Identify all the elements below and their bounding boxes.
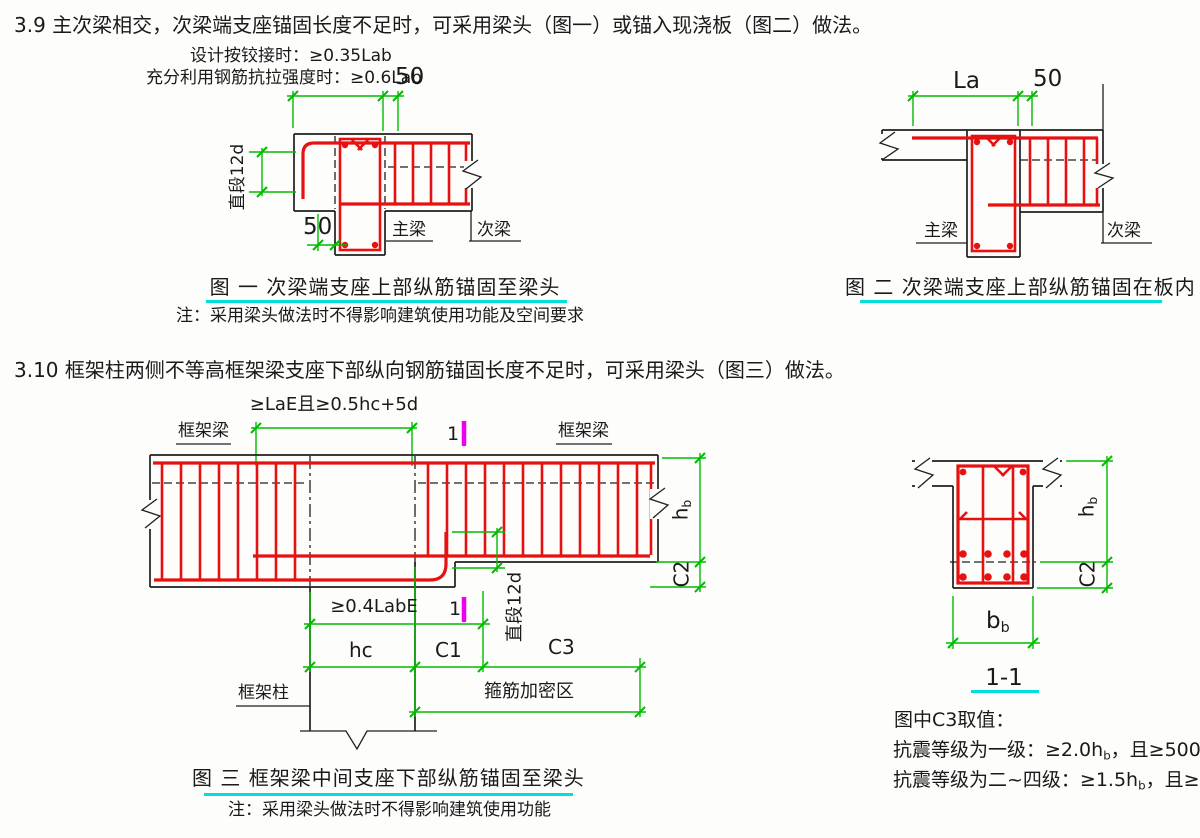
fig1-dim-hinged-label: 设计按铰接时：≥0.35Lab	[190, 47, 392, 67]
fig1-secondary-beam-label: 次梁	[477, 221, 511, 241]
fig3-dim-top-anchorage-label: ≥LaE且≥0.5hc+5d	[244, 395, 424, 416]
fig3-frame-beam-left-label: 框架梁	[178, 422, 229, 442]
fig3-12d-dimension	[452, 527, 505, 573]
fig1-caption-underline	[206, 300, 567, 303]
fig3-caption-underline	[204, 793, 573, 796]
fig1-main-beam-label: 主梁	[392, 221, 426, 241]
fig3-caption: 图 三 框架梁中间支座下部纵筋锚固至梁头	[192, 767, 578, 790]
fig2-top-dimension	[908, 91, 1038, 126]
section11-note-grade1: 抗震等级为一级：≥2.0hb，且≥500	[893, 740, 1200, 763]
fig3-section-marker-bottom: 1	[449, 599, 461, 621]
fig1-note: 注：采用梁头做法时不得影响建筑使用功能及空间要求	[175, 307, 585, 327]
fig3-dim-hb-label: hb	[670, 500, 695, 521]
fig3-dim-c3-label: C3	[548, 636, 575, 659]
fig1-12d-dimension	[249, 147, 296, 197]
section11-dim-bb-label: bb	[986, 608, 1010, 636]
section11-rebar	[958, 466, 1028, 583]
fig3-frame-beam-right-label: 框架梁	[558, 422, 609, 442]
drawing-sheet: 3.9 主次梁相交，次梁端支座锚固长度不足时，可采用梁头（图一）或锚入现浇板（图…	[0, 0, 1200, 838]
section11-notes-title: 图中C3取值：	[894, 710, 1014, 732]
fig2-main-beam-label: 主梁	[924, 222, 958, 242]
fig1-top-dimension	[287, 91, 404, 131]
fig3-dim-hc-label: hc	[349, 639, 373, 662]
fig3-top-dimension	[251, 422, 417, 466]
fig3-dim-04labe-label: ≥0.4LabE	[314, 597, 434, 618]
fig3-dim-12d-label: 直段12d	[506, 572, 527, 642]
fig1-caption: 图 一 次梁端支座上部纵筋锚固至梁头	[197, 276, 573, 299]
section11-dim-hb-label: hb	[1076, 497, 1101, 518]
section11-drawing	[912, 456, 1113, 649]
section11-break-symbols	[915, 458, 1061, 489]
fig3-stirrup-zone-label: 箍筋加密区	[484, 682, 574, 703]
section-3-9-heading: 3.9 主次梁相交，次梁端支座锚固长度不足时，可采用梁头（图一）或锚入现浇板（图…	[14, 14, 872, 37]
fig1-dim-full-strength-label: 充分利用钢筋抗拉强度时：≥0.6Lab	[146, 69, 422, 89]
fig3-note: 注：采用梁头做法时不得影响建筑使用功能	[228, 801, 542, 821]
section11-outline	[912, 461, 1062, 588]
section-3-10-heading: 3.10 框架柱两侧不等高框架梁支座下部纵向钢筋锚固长度不足时，可采用梁头（图三…	[14, 359, 845, 382]
fig3-section-marker-top: 1	[447, 424, 459, 446]
section11-title: 1-1	[974, 665, 1034, 691]
fig2-dim-50-label: 50	[1033, 66, 1062, 92]
section11-note-grade24: 抗震等级为二~四级：≥1.5hb，且≥500	[893, 770, 1200, 793]
fig3-frame-column-label: 框架柱	[238, 684, 289, 704]
fig2-secondary-beam-label: 次梁	[1107, 222, 1141, 242]
section11-dim-c2-label: C2	[1077, 561, 1100, 588]
fig3-dim-c2-label: C2	[671, 561, 694, 588]
fig3-dim-c1-label: C1	[435, 639, 462, 662]
section11-title-underline	[971, 690, 1039, 693]
fig1-dim-50-top-label: 50	[395, 64, 424, 90]
fig1-break-symbol	[463, 160, 481, 189]
fig2-caption: 图 二 次梁端支座上部纵筋锚固在板内	[845, 276, 1175, 299]
fig2-dim-la-label: La	[953, 68, 980, 94]
fig2-caption-underline	[860, 300, 1162, 303]
fig2-outline	[882, 84, 1103, 257]
fig3-drawing	[142, 421, 706, 749]
fig1-dim-12d-label: 直段12d	[229, 144, 249, 210]
fig3-break-symbols	[142, 488, 668, 529]
cad-linework	[0, 0, 1200, 838]
fig1-dim-50-bottom-label: 50	[303, 214, 332, 240]
